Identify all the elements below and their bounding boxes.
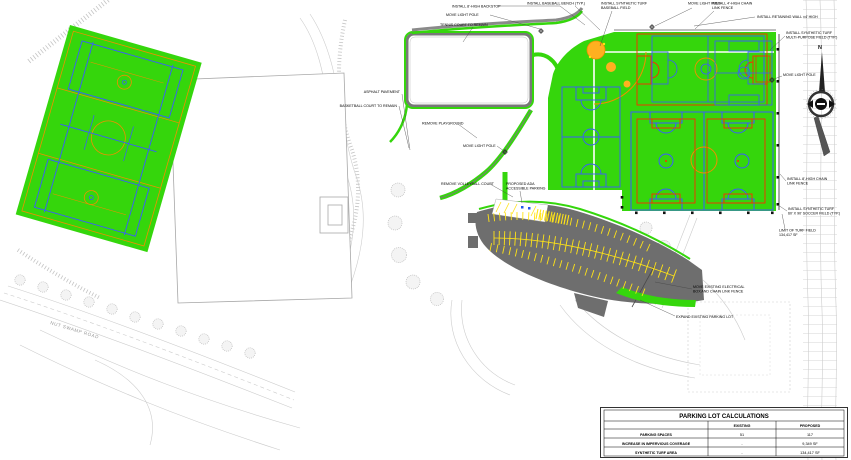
parking-calc-table: PARKING LOT CALCULATIONS EXISTING PROPOS… xyxy=(601,408,848,458)
label-chain8-2: LINK FENCE xyxy=(787,182,809,186)
compass-north-label: N xyxy=(818,45,822,51)
label-soccer-1: INSTALL SYNTHETIC TURF xyxy=(788,207,835,211)
table-row1-proposed: 9,349 SF xyxy=(802,442,818,446)
label-electrical-2: BOX AND CHAIN LINK FENCE xyxy=(693,290,744,294)
label-move-light-pole-3: MOVE LIGHT POLE xyxy=(783,73,816,77)
tennis-court-enclosure xyxy=(405,32,533,108)
table-col-existing: EXISTING xyxy=(734,424,751,428)
label-retaining-wall: INSTALL RETAINING WALL ±4' HIGH xyxy=(757,15,818,19)
table-col-proposed: PROPOSED xyxy=(800,424,821,428)
left-turf-courts xyxy=(16,25,202,252)
label-asphalt-pavement: ASPHALT PAVEMENT xyxy=(364,90,401,94)
label-chain4-2: LINK FENCE xyxy=(712,6,734,10)
table-row0-proposed: 117 xyxy=(807,433,813,437)
label-electrical-1: MOVE EXISTING ELECTRICAL xyxy=(693,285,745,289)
site-plan-drawing: NUT SWAMP ROAD xyxy=(0,0,851,460)
table-row2-label: SYNTHETIC TURF AREA xyxy=(635,451,677,455)
label-chain4-1: INSTALL 4'-HIGH CHAIN xyxy=(712,2,753,6)
table-row0-label: PARKING SPACES xyxy=(640,433,672,437)
label-install-backstop: INSTALL 8'-HIGH BACKSTOP xyxy=(452,5,501,9)
parking-lot xyxy=(468,199,704,317)
site-plan-canvas: NUT SWAMP ROAD xyxy=(0,0,851,460)
label-basketball-remain: BASKETBALL COURT TO REMAIN xyxy=(340,104,398,108)
label-baseball-bench: INSTALL BASEBALL BENCH (TYP.) xyxy=(527,2,585,6)
label-soccer-2: 60' X 90' SOCCER FIELD (TYP.) xyxy=(788,212,840,216)
multi-purpose-field xyxy=(548,30,779,214)
label-move-light-pole-1: MOVE LIGHT POLE xyxy=(446,13,479,17)
existing-building xyxy=(170,73,352,303)
label-expand-parking: EXPAND EXISTING PARKING LOT xyxy=(676,315,734,319)
label-remove-playground: REMOVE PLAYGROUND xyxy=(422,122,464,126)
label-turf-baseball-1: INSTALL SYNTHETIC TURF xyxy=(601,2,648,6)
table-row1-label: INCREASE IN IMPERVIOUS COVERAGE xyxy=(622,442,691,446)
label-remove-volleyball: REMOVE VOLLEYBALL COURT xyxy=(441,182,495,186)
label-ada-1: PROPOSED ADA xyxy=(506,182,535,186)
label-chain8-1: INSTALL 8'-HIGH CHAIN xyxy=(787,177,828,181)
label-limit-2: 134,417 SF xyxy=(779,233,798,237)
label-multi-2: MULTI-PURPOSE FIELD (TYP.) xyxy=(786,36,837,40)
label-ada-2: ACCESSIBLE PARKING xyxy=(506,187,546,191)
label-multi-1: INSTALL SYNTHETIC TURF xyxy=(786,31,833,35)
label-tennis-court-remain: TENNIS COURT TO REMAIN xyxy=(440,23,488,27)
table-row0-existing: 51 xyxy=(740,433,744,437)
table-row2-proposed: 134,417 SF xyxy=(800,451,820,455)
label-turf-baseball-2: BASEBALL FIELD xyxy=(601,6,631,10)
label-move-light-pole-4: MOVE LIGHT POLE xyxy=(463,144,496,148)
label-limit-1: LIMIT OF TURF FIELD xyxy=(779,229,816,233)
table-title: PARKING LOT CALCULATIONS xyxy=(679,414,768,420)
